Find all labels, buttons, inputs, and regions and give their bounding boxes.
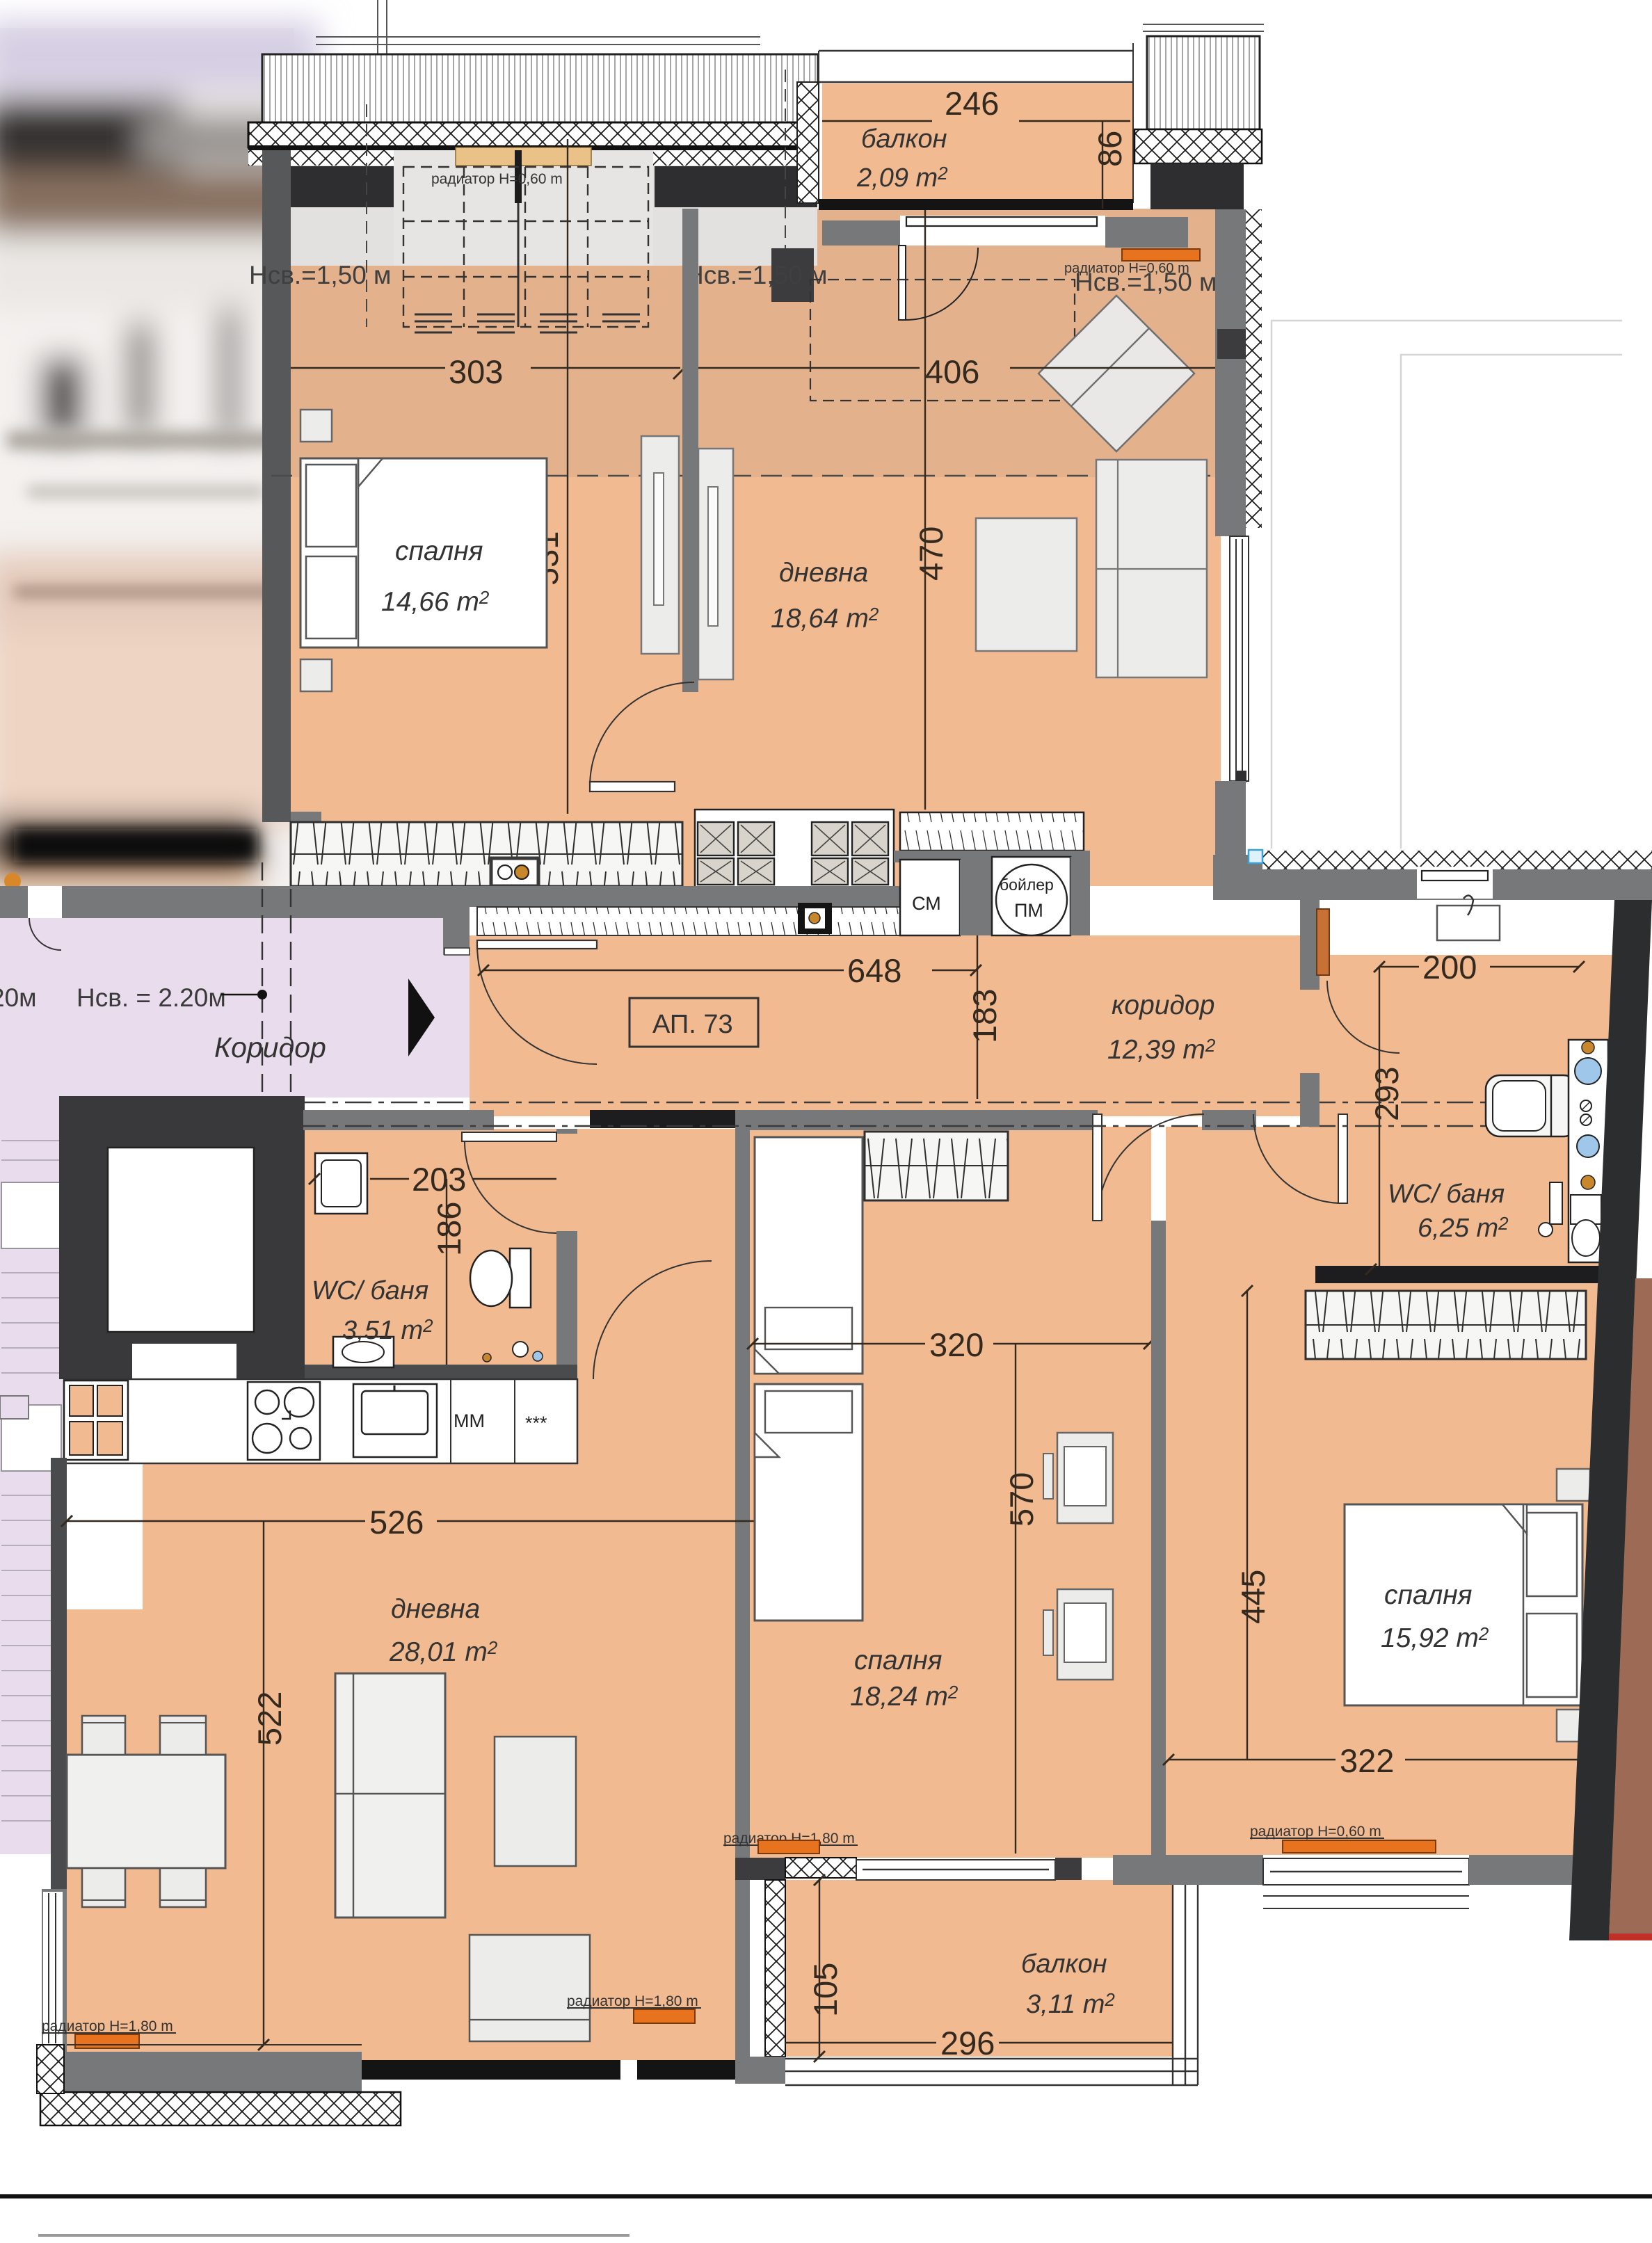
svg-text:радиатор H=0,60 m: радиатор H=0,60 m [1250, 1824, 1381, 1840]
svg-text:18,64 m2: 18,64 m2 [771, 604, 879, 634]
svg-text:балкон: балкон [1021, 1949, 1107, 1979]
svg-text:АП. 73: АП. 73 [652, 1010, 733, 1039]
svg-text:303: 303 [449, 353, 503, 390]
svg-text:ПМ: ПМ [1014, 900, 1043, 921]
svg-text:спалня: спалня [395, 536, 483, 566]
svg-text:18,24 m2: 18,24 m2 [850, 1682, 959, 1712]
svg-text:3,11 m2: 3,11 m2 [1026, 1989, 1115, 2019]
svg-text:183: 183 [966, 989, 1003, 1043]
svg-text:186: 186 [431, 1202, 467, 1256]
svg-text:Нсв. = 2.20м: Нсв. = 2.20м [77, 983, 226, 1012]
svg-text:WC/ баня: WC/ баня [312, 1276, 428, 1305]
svg-text:526: 526 [369, 1504, 424, 1541]
svg-text:радиатор H=0,60 m: радиатор H=0,60 m [431, 171, 563, 187]
svg-text:20м: 20м [0, 983, 37, 1012]
svg-text:105: 105 [807, 1963, 844, 2017]
svg-text:радиатор H=1,80 m: радиатор H=1,80 m [567, 1993, 698, 2009]
svg-text:ММ: ММ [454, 1410, 485, 1431]
svg-text:28,01 m2: 28,01 m2 [389, 1637, 498, 1667]
svg-text:радиатор H=1,80 m: радиатор H=1,80 m [42, 2018, 173, 2034]
svg-text:спалня: спалня [1384, 1580, 1473, 1610]
svg-text:бойлер: бойлер [1000, 876, 1054, 894]
svg-text:Нсв.=1,50 м: Нсв.=1,50 м [249, 261, 392, 289]
svg-text:246: 246 [945, 85, 999, 122]
svg-text:Коридор: Коридор [214, 1031, 326, 1063]
svg-text:2,09 m2: 2,09 m2 [856, 163, 948, 193]
svg-text:470: 470 [913, 526, 949, 581]
svg-text:СМ: СМ [912, 893, 941, 914]
svg-text:15,92 m2: 15,92 m2 [1381, 1623, 1489, 1653]
svg-text:спалня: спалня [854, 1646, 943, 1675]
svg-text:коридор: коридор [1112, 990, 1214, 1020]
svg-text:322: 322 [1340, 1742, 1394, 1779]
svg-text:WC/ баня: WC/ баня [1388, 1180, 1505, 1209]
svg-text:445: 445 [1235, 1570, 1272, 1624]
svg-text:522: 522 [251, 1691, 288, 1746]
svg-text:293: 293 [1368, 1067, 1405, 1121]
svg-text:203: 203 [412, 1161, 466, 1198]
svg-text:Нсв.=1,50 м: Нсв.=1,50 м [685, 261, 828, 289]
svg-text:648: 648 [847, 952, 901, 989]
svg-text:570: 570 [1003, 1472, 1040, 1527]
svg-text:12,39 m2: 12,39 m2 [1107, 1035, 1216, 1065]
svg-text:6,25 m2: 6,25 m2 [1418, 1213, 1509, 1243]
svg-text:406: 406 [925, 353, 979, 390]
svg-text:86: 86 [1091, 131, 1128, 167]
svg-text:дневна: дневна [391, 1594, 480, 1624]
svg-text:320: 320 [929, 1326, 984, 1363]
svg-text:14,66 m2: 14,66 m2 [381, 587, 490, 617]
svg-text:балкон: балкон [861, 124, 947, 154]
svg-text:200: 200 [1422, 949, 1477, 986]
svg-text:296: 296 [940, 2025, 995, 2061]
svg-text:Нсв.=1,50 м: Нсв.=1,50 м [1075, 268, 1217, 296]
svg-text:дневна: дневна [779, 558, 868, 588]
svg-text:***: *** [525, 1413, 547, 1433]
svg-text:3,51 m2: 3,51 m2 [342, 1315, 433, 1345]
